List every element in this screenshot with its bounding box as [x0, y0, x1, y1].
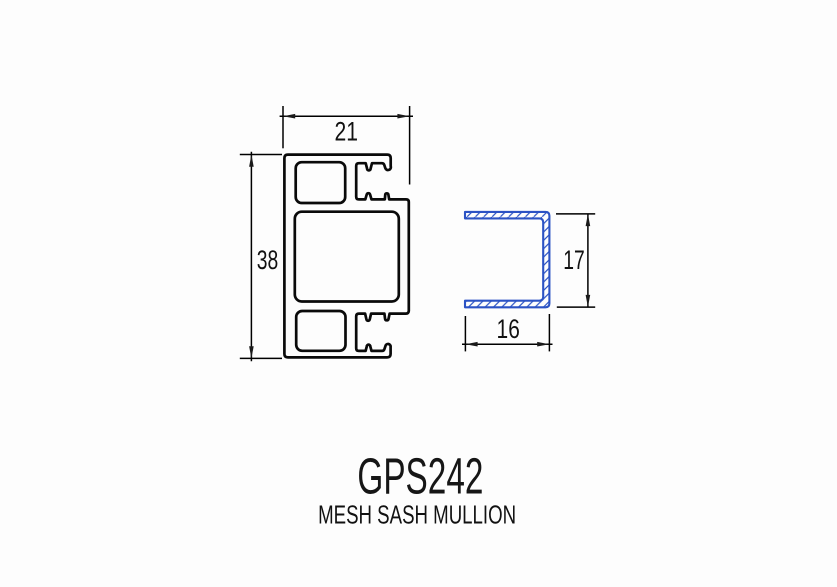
- svg-text:16: 16: [497, 314, 520, 344]
- svg-text:GPS242: GPS242: [357, 448, 483, 505]
- svg-text:21: 21: [335, 117, 359, 147]
- svg-text:MESH SASH MULLION: MESH SASH MULLION: [318, 500, 516, 530]
- svg-text:38: 38: [257, 245, 279, 275]
- svg-text:17: 17: [563, 245, 585, 275]
